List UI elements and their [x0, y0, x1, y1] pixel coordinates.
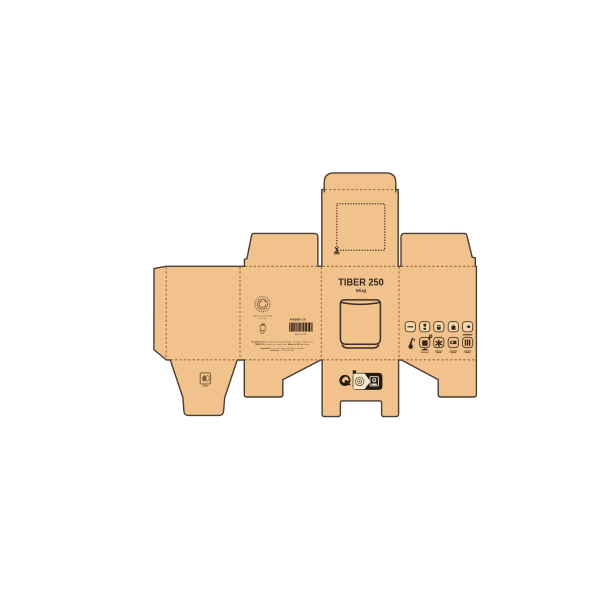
svg-text:100% paper: 100% paper — [258, 317, 268, 320]
svg-text:TIBER 250 Ceramic stu. Mug 250: TIBER 250 Ceramic stu. Mug 250ml. Made f… — [255, 343, 310, 346]
svg-text:Mug: Mug — [356, 288, 366, 294]
svg-text:www.site, +31 20 000 000: www.site, +31 20 000 000 — [270, 349, 295, 352]
svg-text:AH02857 100: AH02857 100 — [290, 317, 307, 321]
svg-text:TIBER 250: TIBER 250 — [338, 278, 384, 289]
svg-text:Made in PRC: Made in PRC — [295, 334, 307, 336]
